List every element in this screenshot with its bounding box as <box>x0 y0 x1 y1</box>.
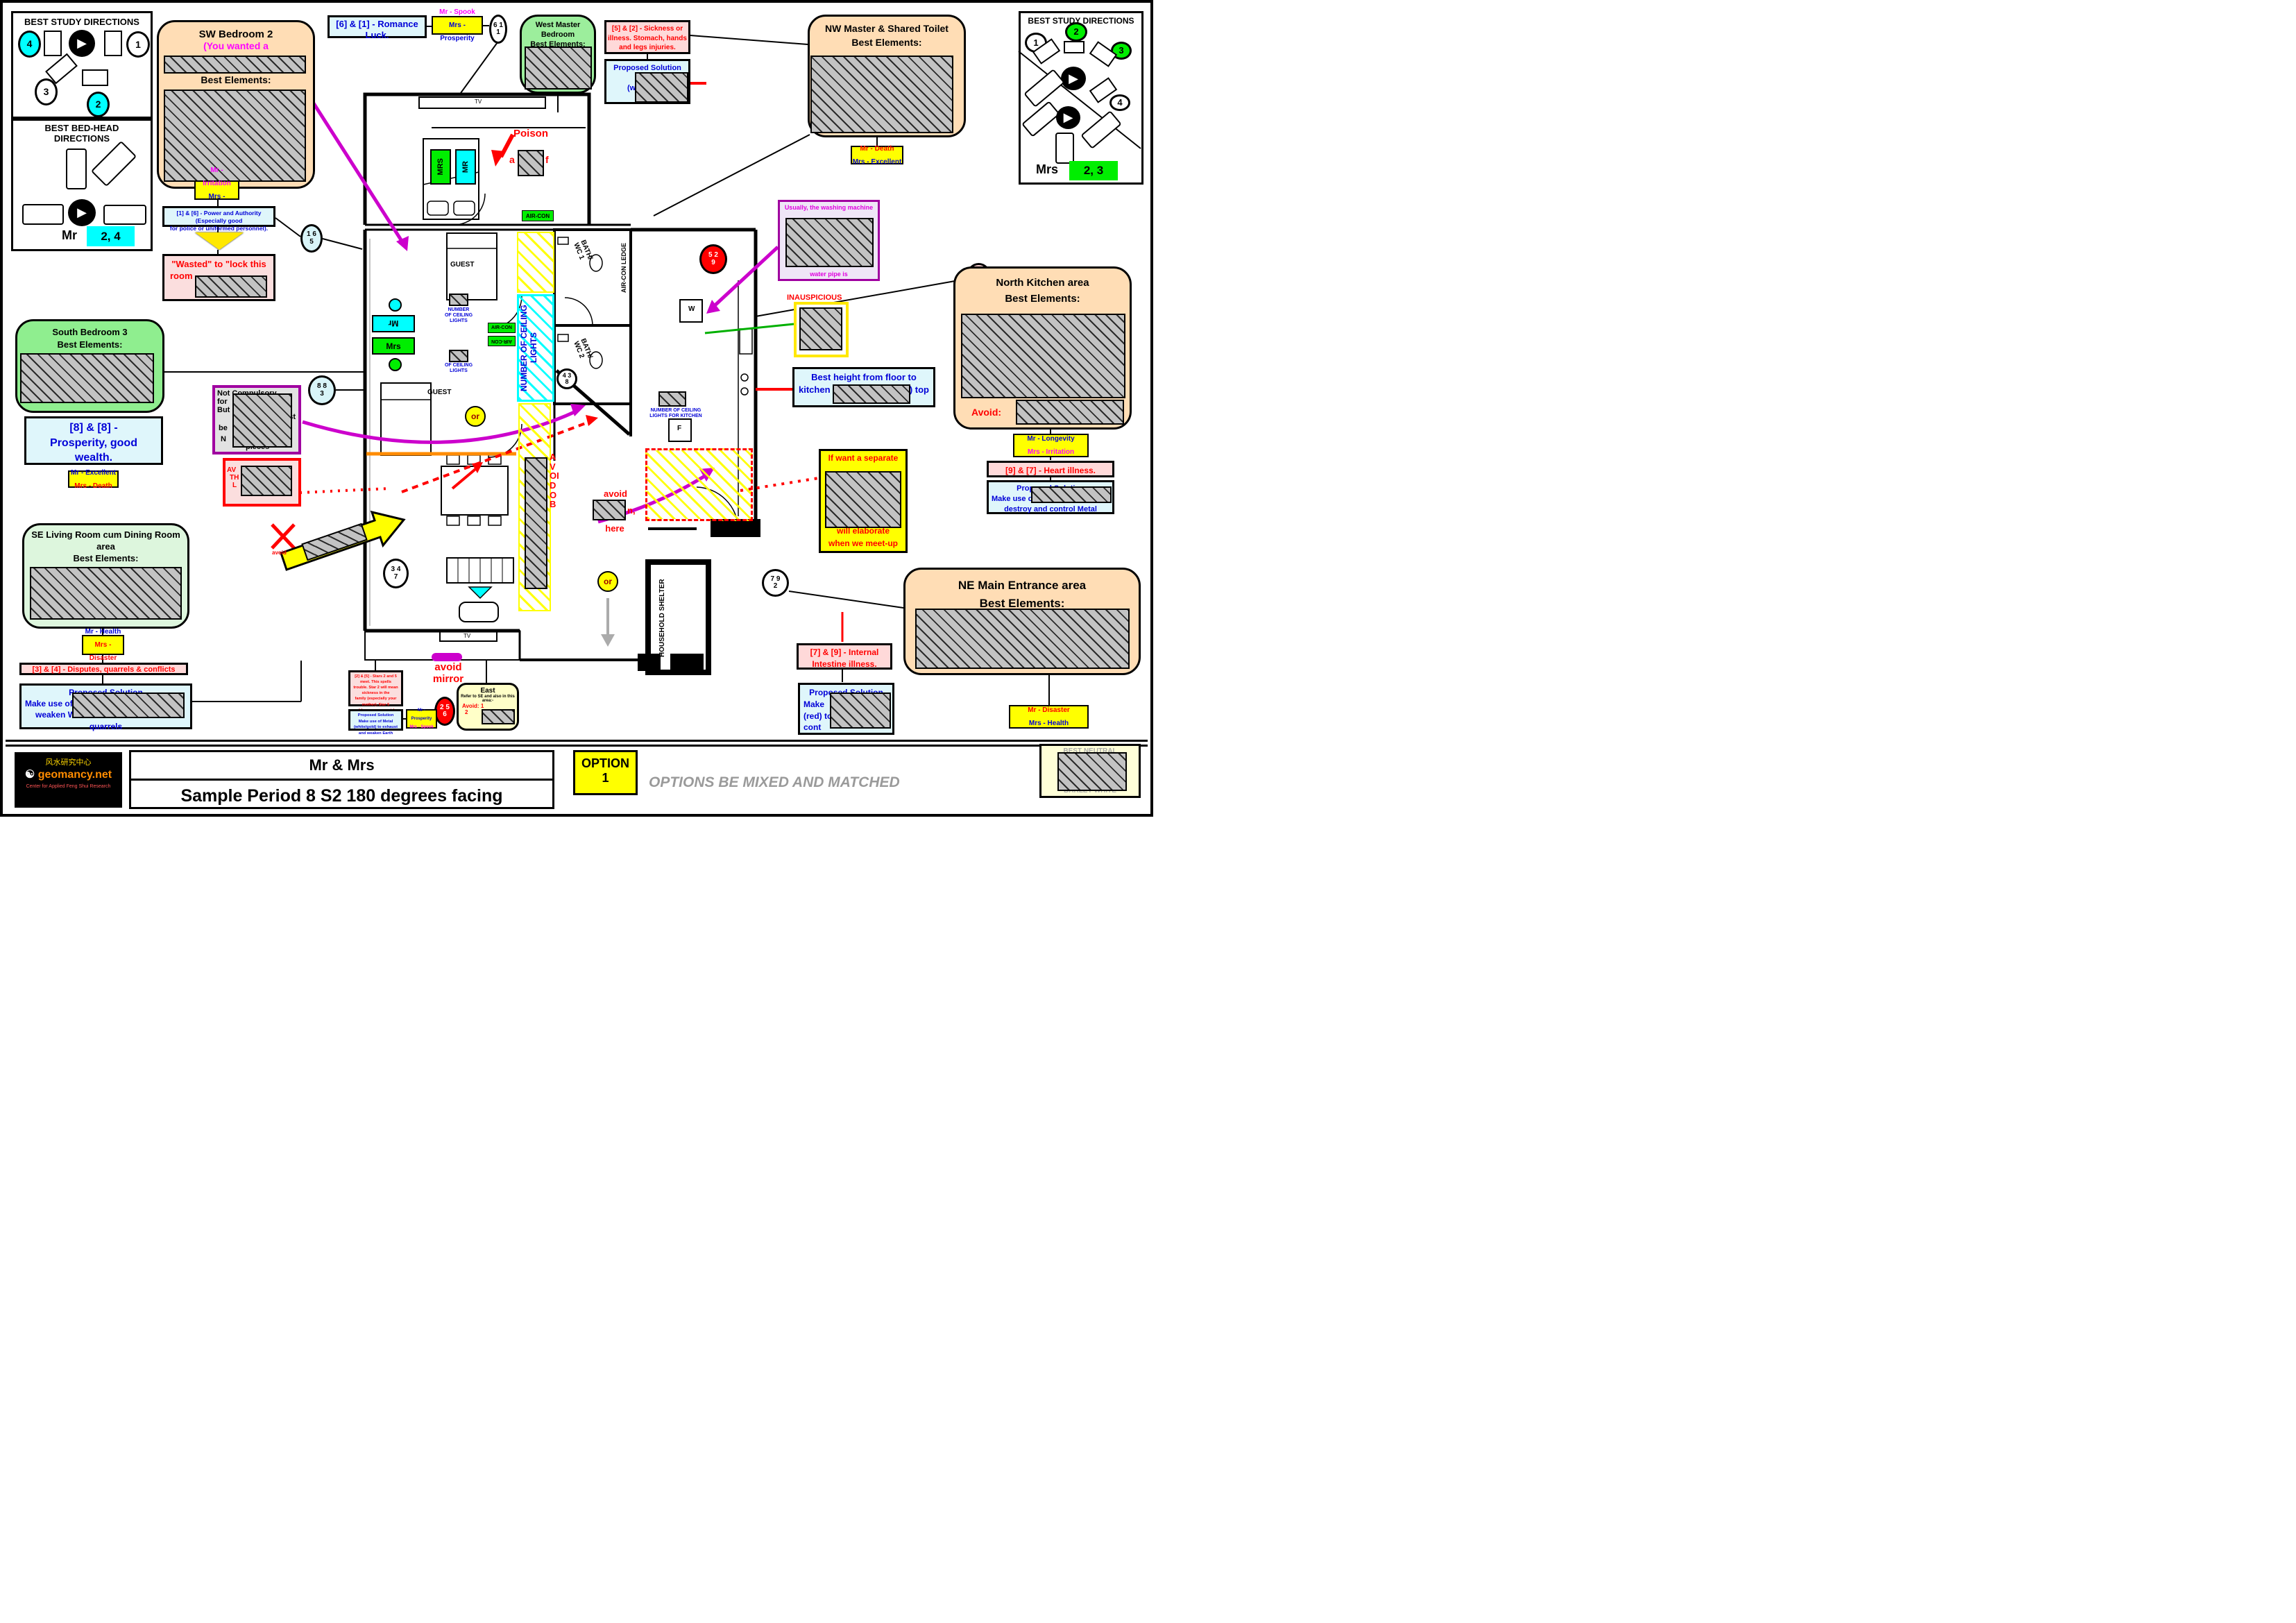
coffee-table <box>459 602 498 622</box>
room-note: (You wanted a <box>159 40 313 51</box>
heart-illness-box: [9] & [7] - Heart illness. <box>987 461 1114 477</box>
redacted-content <box>72 692 185 718</box>
corridor-strip-label: NUMBER OF CEILING LIGHTS <box>519 296 552 400</box>
redacted-content <box>833 384 910 404</box>
fridge-label: F <box>677 425 681 432</box>
aircon-ledge-label: AIR-CON LEDGE <box>620 233 638 303</box>
entrance-avoid-zone <box>645 448 753 521</box>
star-circle-256: 2 56 <box>434 697 455 726</box>
bed-icon <box>1055 133 1074 164</box>
room-title: SW Bedroom 2 <box>159 28 313 40</box>
option-number: 1 <box>575 771 636 785</box>
avoid-here-label2: here <box>594 523 636 534</box>
bed-icon <box>22 204 64 225</box>
east-avoid-1: Avoid: 1 <box>462 703 517 709</box>
sink-icon <box>740 329 752 354</box>
washing-machine-label: W <box>688 305 695 313</box>
avoid-here-frag: n, <box>627 505 636 516</box>
green-dot <box>389 358 402 371</box>
redacted-content <box>825 471 901 528</box>
footer-separator <box>6 740 1148 742</box>
romance-luck-box: [6] & [1] - RomanceLuck. <box>328 15 427 38</box>
power-authority-box: [1] & [6] - Power and Authority (Especia… <box>162 206 275 227</box>
client-names: Mr & Mrs <box>131 752 552 781</box>
or-option-circle-1: or <box>465 406 486 427</box>
direction-2: 2 <box>1065 22 1087 42</box>
tv-label-top: TV <box>475 99 482 105</box>
redacted-content <box>1057 752 1127 791</box>
study-directions-right-panel: BEST STUDY DIRECTIONS 1 2 3 4 ▶ ▶ Mrs 2,… <box>1019 11 1143 185</box>
south-tag: Mr - ExcellentMrs - Death <box>68 470 119 488</box>
avoid-arrow-note: avoid <box>272 550 287 556</box>
redacted-content <box>482 709 515 724</box>
person-label: Mr <box>62 228 77 243</box>
redacted-content <box>830 692 891 729</box>
guest-label-1: GUEST <box>450 261 474 269</box>
desk-icon <box>44 31 62 56</box>
bed-icon <box>103 205 146 225</box>
direction-2: 2 <box>87 92 110 117</box>
redacted-content <box>658 391 686 407</box>
direction-disc-icon: ▶ <box>1061 67 1086 90</box>
option-label: OPTION <box>575 756 636 771</box>
direction-4: 4 <box>1109 94 1130 111</box>
redacted-content <box>961 314 1125 398</box>
aircon-label-corridor: AIR-CON <box>522 210 554 221</box>
room-title: NW Master & Shared ToiletBest Elements: <box>810 22 964 49</box>
mrs-bed-label: MRS <box>430 149 451 185</box>
romance-tag: Mr - SpookMrs - Prosperity <box>432 16 483 35</box>
star-circle-347: 3 47 <box>383 559 409 588</box>
ceiling-lights-strip-upper <box>517 232 554 293</box>
footer-separator <box>6 745 1148 747</box>
redacted-content <box>635 72 688 103</box>
east-refer: Refer to SE and also in this area:- <box>459 695 517 703</box>
sw-tag: Mr - IrritationMrs - Longevity <box>194 180 239 200</box>
logo-chinese: 风水研究中心 <box>46 758 92 767</box>
desk-icon <box>104 31 122 56</box>
avoid-mirror-bar <box>432 653 462 661</box>
room-title: SE Living Room cum Dining RoomareaBest E… <box>24 529 187 565</box>
avoid-here-label: avoid <box>591 488 640 499</box>
chart-subtitle: Sample Period 8 S2 180 degrees facing <box>131 781 552 811</box>
aircon-label-2-flipped: AIR-CON <box>488 336 516 346</box>
star-circle-611: 6 11 <box>489 15 507 44</box>
study-directions-left-panel: BEST STUDY DIRECTIONS 4 ▶ 1 3 2 <box>11 11 153 119</box>
inauspicious-label: INAUSPICIOUS <box>787 294 842 302</box>
bed-icon <box>66 148 87 189</box>
cyan-triangle-marker <box>469 587 491 598</box>
mr-wall-marker: Mr <box>372 315 415 332</box>
kitchen-tag: Mr - LongevityMrs - Irritation <box>1013 434 1089 457</box>
redacted-content <box>810 56 953 133</box>
bed-icon <box>91 141 137 187</box>
guest-label-2: GUEST <box>427 389 451 396</box>
se-tag: Mr - HealthMrs - Disaster <box>82 635 124 655</box>
logo-tagline: Center for Applied Feng Shui Research <box>26 784 111 789</box>
redacted-content <box>449 294 468 306</box>
intestine-illness-box: [7] & [9] - InternalIntestine illness. <box>797 643 892 670</box>
redacted-content <box>593 500 626 520</box>
best-directions-value: 2, 3 <box>1069 161 1118 180</box>
kitchen-ceiling-lights-note: NUMBER OF CEILINGLIGHTS FOR KITCHEN <box>641 408 711 419</box>
person-label: Mrs <box>1036 162 1058 177</box>
poison-frag-a: a <box>509 154 515 165</box>
or-option-circle-2: or <box>597 571 618 592</box>
avoid-mirror-label: avoidmirror <box>423 662 473 685</box>
direction-disc-icon: ▶ <box>68 199 96 226</box>
option-badge: OPTION 1 <box>573 750 638 795</box>
guest-bed-2 <box>381 383 431 455</box>
star-circle-529: 5 29 <box>699 244 727 274</box>
room-title: North Kitchen areaBest Elements: <box>955 275 1130 307</box>
sickness-box: [5] & [2] - Sickness orillness. Stomach,… <box>604 20 690 54</box>
redacted-content <box>915 609 1130 669</box>
stars-solution-box: Proposed SolutionMake use of Metal (whit… <box>348 709 403 731</box>
redacted-content <box>241 466 292 496</box>
poison-frag-f: f <box>545 154 549 165</box>
redacted-content <box>30 567 182 620</box>
room-title: West Master BedroomBest Elements: <box>522 21 594 49</box>
best-directions-value: 2, 4 <box>87 226 135 246</box>
yellow-down-arrow <box>195 232 244 250</box>
ceiling-lights-note-1: NUMBEROF CEILINGLIGHTS <box>438 307 479 324</box>
mr-bed-label: MR <box>455 149 476 185</box>
household-shelter-label: HOUSEHOLD SHELTER <box>658 573 700 663</box>
yin-yang-icon: ☯ <box>25 769 35 781</box>
room-title: NE Main Entrance areaBest Elements: <box>905 577 1139 612</box>
east-title: East <box>459 687 517 695</box>
ne-tag: Mr - DisasterMrs - Health <box>1009 705 1089 729</box>
panel-title: BEST BED-HEADDIRECTIONS <box>13 124 151 144</box>
direction-disc-icon: ▶ <box>69 30 95 57</box>
star-circle-883: 8 83 <box>308 375 336 405</box>
redacted-content <box>1031 486 1112 503</box>
desk-icon <box>1064 41 1085 53</box>
stars-tag: Mr - ProsperityMrs - Spook <box>406 709 437 729</box>
redacted-content <box>232 393 292 448</box>
prosperity-box: [8] & [8] -Prosperity, goodwealth. <box>24 416 163 465</box>
poison-label: Poison <box>513 128 548 139</box>
desk-icon <box>82 69 108 86</box>
bed-icon <box>1080 110 1122 149</box>
redacted-content <box>164 56 306 74</box>
tv-label-bottom: TV <box>464 633 470 639</box>
logo-site: geomancy.net <box>38 769 112 781</box>
redacted-content <box>785 218 874 267</box>
best-elements-label: Best Elements: <box>182 74 290 85</box>
redacted-content <box>525 46 592 90</box>
direction-3: 3 <box>35 78 58 105</box>
panel-title: BEST STUDY DIRECTIONS <box>13 17 151 27</box>
avoid-obstruction-label: AVOID OB <box>550 452 561 509</box>
mrs-wall-marker: Mrs <box>372 337 415 355</box>
star-circle-165: 1 65 <box>300 224 323 253</box>
bed-icon <box>1021 101 1060 137</box>
redacted-content <box>1016 400 1124 425</box>
cyan-dot <box>389 298 402 312</box>
star-circle-792: 7 92 <box>762 569 789 597</box>
disputes-box: [3] & [4] - Disputes, quarrels & conflic… <box>19 663 188 675</box>
redacted-content <box>799 307 842 350</box>
direction-1: 1 <box>126 31 150 58</box>
dining-table <box>441 466 508 515</box>
title-block: Mr & Mrs Sample Period 8 S2 180 degrees … <box>129 750 554 809</box>
redacted-strip <box>525 457 547 589</box>
redacted-content <box>449 350 468 362</box>
direction-4: 4 <box>18 31 41 58</box>
redacted-content <box>195 275 267 298</box>
direction-disc-icon: ▶ <box>1056 106 1080 129</box>
bed-icon <box>1023 69 1065 108</box>
redacted-content <box>20 353 154 403</box>
aircon-label-1: AIR-CON <box>488 323 516 333</box>
ceiling-lights-note-2: OF CEILINGLIGHTS <box>438 363 479 374</box>
room-title: South Bedroom 3Best Elements: <box>17 326 162 351</box>
corridor-ceiling-lights-strip: NUMBER OF CEILING LIGHTS <box>517 294 554 402</box>
star-circle-438: 4 38 <box>556 368 577 389</box>
kitchen-avoid-label: Avoid: <box>971 407 1001 418</box>
redacted-content <box>518 150 544 176</box>
nw-tag: Mr - DeathMrs - Excellent <box>851 146 903 164</box>
mixed-matched-tagline: OPTIONS BE MIXED AND MATCHED <box>649 774 996 791</box>
logo: 风水研究中心 ☯ geomancy.net Center for Applied… <box>15 752 122 808</box>
stars-warning-box: [2] & [5] - Stars 2 and 5 meet. This spe… <box>348 670 403 706</box>
bedhead-directions-panel: BEST BED-HEADDIRECTIONS ▶ Mr 2, 4 <box>11 119 153 251</box>
feng-shui-floorplan-page: NUMBER OF CEILING LIGHTS AVOID OB NUMBER… <box>0 0 1153 817</box>
